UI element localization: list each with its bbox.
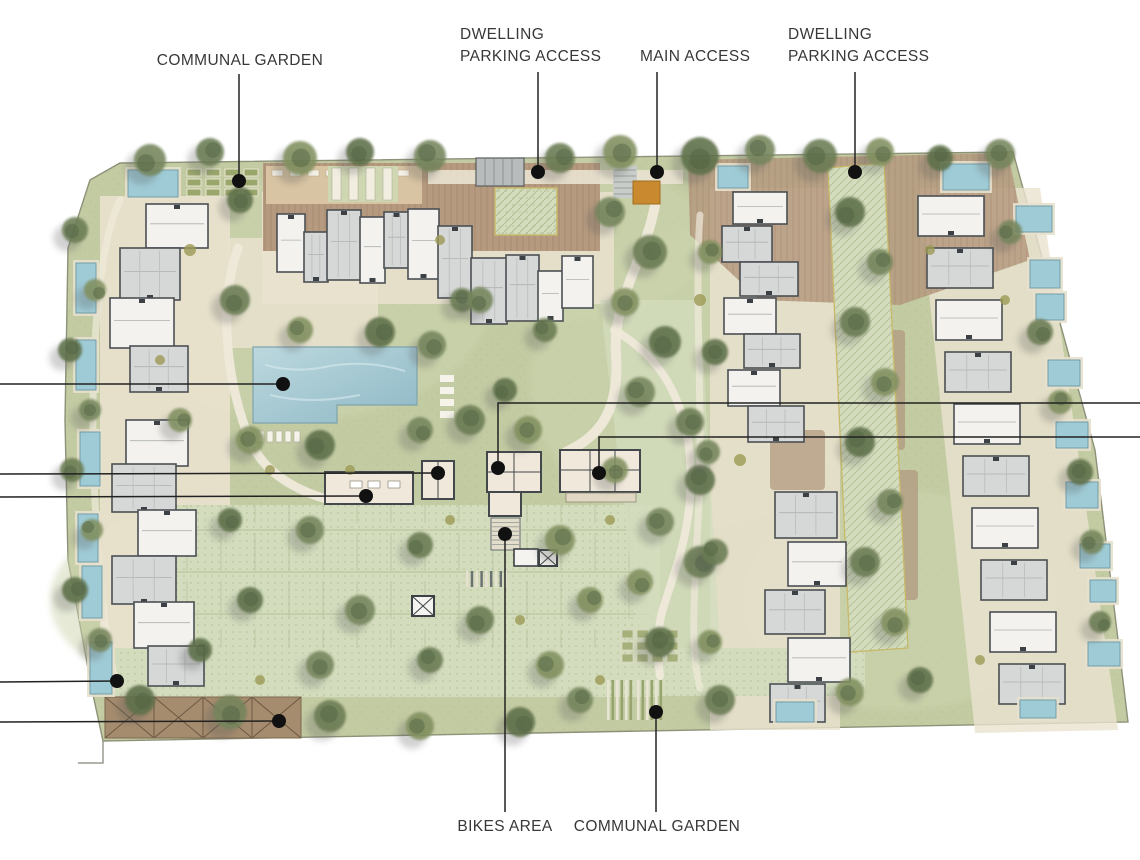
tree-canopy-core xyxy=(649,513,664,528)
garden-bed xyxy=(187,179,201,186)
tree-canopy-core xyxy=(838,207,855,224)
tree-canopy-core xyxy=(82,521,94,533)
roof-access-mark xyxy=(769,363,775,367)
bike-rack xyxy=(471,571,473,587)
tree-canopy-core xyxy=(999,225,1012,238)
tree-canopy-core xyxy=(609,465,623,479)
allotment-stripe xyxy=(630,680,633,720)
private-pool xyxy=(1090,580,1116,602)
allotment-stripe xyxy=(637,680,640,720)
tree-canopy-core xyxy=(1098,619,1110,631)
tree-canopy-core xyxy=(705,243,718,256)
dwelling-building xyxy=(134,602,194,648)
dwelling-building xyxy=(110,298,174,348)
boundary-step xyxy=(78,741,103,763)
tree-canopy-core xyxy=(469,615,484,630)
roof-access-mark xyxy=(486,319,492,323)
main-access-plaza xyxy=(633,181,660,204)
pool-lounger xyxy=(440,387,454,394)
label-communal-garden-top: COMMUNAL GARDEN xyxy=(157,50,323,72)
dwelling-building xyxy=(724,298,776,334)
private-pool xyxy=(1020,700,1056,718)
tree-canopy-core xyxy=(418,144,436,162)
dwelling-building xyxy=(972,508,1038,548)
dwelling-building xyxy=(765,590,825,634)
dwelling-building xyxy=(538,271,563,321)
roof-access-mark xyxy=(814,581,820,585)
tree-canopy-core xyxy=(635,578,649,592)
pool-lounger-row xyxy=(285,431,291,442)
roof-access-mark xyxy=(773,437,779,441)
tree-canopy-core xyxy=(63,465,76,478)
dwelling-building xyxy=(775,492,837,538)
tree-canopy-core xyxy=(495,385,508,398)
dwelling-building xyxy=(120,248,180,300)
shrub xyxy=(975,655,985,665)
roof-access-mark xyxy=(452,227,458,231)
dwelling-building xyxy=(562,256,593,308)
garden-bed xyxy=(206,189,220,196)
dwelling-building xyxy=(408,209,439,279)
dwelling-building xyxy=(722,226,772,262)
tree-canopy-core xyxy=(137,154,155,172)
tree-canopy-core xyxy=(575,690,589,704)
roof-access-mark xyxy=(1002,543,1008,547)
roof-access-mark xyxy=(948,231,954,235)
private-pool xyxy=(1048,360,1080,386)
tree-canopy-core xyxy=(463,410,480,427)
dwelling-building xyxy=(130,346,188,392)
dwelling-building xyxy=(936,300,1002,340)
tree-canopy-core xyxy=(712,691,729,708)
roof-access-mark xyxy=(751,371,757,375)
roof-access-mark xyxy=(803,493,809,497)
allotment-stripe xyxy=(655,680,658,720)
dwelling-building xyxy=(990,612,1056,652)
gym-equipment xyxy=(388,481,400,488)
tree-canopy-core xyxy=(205,142,220,157)
roof-access-mark xyxy=(795,685,801,689)
tree-canopy-core xyxy=(911,671,925,685)
tree-canopy-core xyxy=(135,693,152,710)
bike-rack xyxy=(466,571,468,587)
tree-canopy-core xyxy=(1072,464,1086,478)
garden-bed xyxy=(225,169,239,176)
shrub xyxy=(515,615,525,625)
roof-access-mark xyxy=(747,299,753,303)
dwelling-building xyxy=(728,370,780,406)
roof-access-mark xyxy=(421,274,427,278)
tree-canopy-core xyxy=(195,643,208,656)
label-dwelling-parking-left: DWELLING PARKING ACCESS xyxy=(460,24,601,68)
dwelling-building xyxy=(327,210,361,280)
pool-lounger xyxy=(440,375,454,382)
roof-access-mark xyxy=(173,681,179,685)
tree-canopy-core xyxy=(351,146,366,161)
dwelling-building xyxy=(112,464,176,512)
tree-canopy-core xyxy=(652,632,669,649)
shrub xyxy=(694,294,706,306)
tree-canopy-core xyxy=(654,336,672,354)
tree-canopy-core xyxy=(472,296,486,310)
bike-rack xyxy=(500,571,502,587)
tree-canopy-core xyxy=(225,515,238,528)
private-pool xyxy=(1030,260,1060,288)
tree-canopy-core xyxy=(643,242,662,261)
tree-canopy-core xyxy=(538,656,553,671)
dwelling-building xyxy=(963,456,1029,496)
tree-canopy-core xyxy=(84,404,96,416)
shrub xyxy=(255,675,265,685)
dwelling-building xyxy=(981,560,1047,600)
tree-canopy-core xyxy=(416,426,430,440)
gym-equipment xyxy=(350,481,362,488)
masterplan-canvas: COMMUNAL GARDEN DWELLING PARKING ACCESS … xyxy=(0,0,1140,860)
private-pool xyxy=(80,432,100,486)
roof-access-mark xyxy=(744,227,750,231)
tree-canopy-core xyxy=(606,201,623,218)
allotment-stripe xyxy=(616,680,619,720)
dwelling-building xyxy=(945,352,1011,392)
shrub xyxy=(435,235,445,245)
plaza-hatch xyxy=(495,188,557,235)
tree-canopy-core xyxy=(1054,392,1067,405)
tree-canopy-core xyxy=(94,634,107,647)
tree-canopy-core xyxy=(617,295,632,310)
private-pool xyxy=(1056,422,1088,448)
allotment-stripe xyxy=(621,680,624,720)
tree-canopy-core xyxy=(706,634,719,647)
private-pool xyxy=(776,702,814,722)
private-pool xyxy=(1016,206,1052,232)
tree-canopy-core xyxy=(290,321,304,335)
amenity-c-deck xyxy=(566,493,636,502)
roof-access-mark xyxy=(156,387,162,391)
tree-canopy-core xyxy=(690,149,711,170)
tree-canopy-core xyxy=(750,140,767,157)
tree-canopy-core xyxy=(685,414,700,429)
tree-canopy-core xyxy=(65,341,78,354)
pool-lounger xyxy=(440,399,454,406)
garden-plot xyxy=(622,654,633,662)
dwelling-building xyxy=(277,214,305,272)
pool-lounger-row xyxy=(276,431,282,442)
tree-canopy-core xyxy=(1082,536,1095,549)
shrub xyxy=(1000,295,1010,305)
dwelling-building xyxy=(927,248,993,288)
bike-rack xyxy=(480,571,482,587)
planter xyxy=(332,168,341,200)
roof-access-mark xyxy=(984,439,990,443)
planter xyxy=(366,168,375,200)
garden-bed xyxy=(225,179,239,186)
pool-lounger-row xyxy=(294,431,300,442)
allotment-stripe xyxy=(625,680,628,720)
dwelling-building xyxy=(138,510,196,556)
roof-access-mark xyxy=(313,277,319,281)
garden-bed xyxy=(187,189,201,196)
tree-canopy-core xyxy=(587,591,601,605)
tree-canopy-core xyxy=(859,555,876,572)
dwelling-building xyxy=(360,217,385,283)
pedestrian-band-texture xyxy=(103,648,865,696)
roof-access-mark xyxy=(520,256,526,260)
shrub xyxy=(925,245,935,255)
tree-canopy-core xyxy=(519,422,534,437)
roof-access-mark xyxy=(164,511,170,515)
gym-equipment xyxy=(368,481,380,488)
planter xyxy=(383,168,392,200)
tree-canopy-core xyxy=(991,145,1008,162)
label-communal-garden-bottom: COMMUNAL GARDEN xyxy=(574,816,740,838)
label-dwelling-parking-right: DWELLING PARKING ACCESS xyxy=(788,24,929,68)
pool-lounger-row xyxy=(267,431,273,442)
tree-canopy-core xyxy=(876,376,891,391)
dwelling-building xyxy=(112,556,176,604)
roof-access-mark xyxy=(370,278,376,282)
tree-canopy-core xyxy=(93,287,105,299)
shrub xyxy=(595,675,605,685)
tree-canopy-core xyxy=(875,146,890,161)
roof-access-mark xyxy=(575,257,581,261)
allotment-stripe xyxy=(660,680,663,720)
tree-canopy-core xyxy=(516,716,533,733)
dwelling-building xyxy=(744,334,800,368)
tree-canopy-core xyxy=(840,685,855,700)
tree-canopy-core xyxy=(535,321,548,334)
roof-access-mark xyxy=(288,215,294,219)
dwelling-building xyxy=(740,262,798,296)
tree-canopy-core xyxy=(312,659,327,674)
tree-canopy-core xyxy=(320,705,338,723)
tree-canopy-core xyxy=(308,438,325,455)
tree-canopy-core xyxy=(409,540,423,554)
tree-canopy-core xyxy=(613,144,632,163)
tree-canopy-core xyxy=(887,494,901,508)
tree-canopy-core xyxy=(65,224,79,238)
tree-canopy-core xyxy=(849,431,866,448)
tree-canopy-core xyxy=(292,149,311,168)
dwelling-building xyxy=(304,232,328,282)
bike-rack xyxy=(504,571,506,587)
tree-canopy-core xyxy=(376,324,393,341)
roof-access-mark xyxy=(161,603,167,607)
roof-access-mark xyxy=(766,291,772,295)
site-plan-drawing xyxy=(0,0,1140,860)
tree-canopy-core xyxy=(556,149,573,166)
dwelling-building xyxy=(788,542,846,586)
tree-canopy-core xyxy=(708,345,722,359)
label-main-access: MAIN ACCESS xyxy=(640,46,750,68)
tree-canopy-core xyxy=(71,582,85,596)
dwelling-building xyxy=(506,255,539,321)
dwelling-building xyxy=(918,196,984,236)
shrub xyxy=(184,244,196,256)
dwelling-building xyxy=(954,404,1020,444)
dwelling-building xyxy=(384,212,409,268)
bike-rack xyxy=(490,571,492,587)
tree-canopy-core xyxy=(807,147,826,166)
shrub xyxy=(734,454,746,466)
shrub xyxy=(345,465,355,475)
shrub xyxy=(605,515,615,525)
tree-canopy-core xyxy=(934,148,948,162)
tree-canopy-core xyxy=(240,431,255,446)
roof-access-mark xyxy=(1029,665,1035,669)
dwelling-building xyxy=(788,638,850,682)
allotment-stripe xyxy=(646,680,649,720)
roof-access-mark xyxy=(1020,647,1026,651)
label-bikes-area: BIKES AREA xyxy=(457,816,552,838)
roof-access-mark xyxy=(993,457,999,461)
private-pool xyxy=(1036,294,1064,320)
amenity-b-annex xyxy=(489,492,521,516)
dwelling-building xyxy=(748,406,804,442)
tree-canopy-core xyxy=(876,253,890,267)
tree-canopy-core xyxy=(244,592,258,606)
garden-bed xyxy=(244,179,258,186)
roof-access-mark xyxy=(757,219,763,223)
tree-canopy-core xyxy=(421,650,435,664)
roof-access-mark xyxy=(966,335,972,339)
tree-canopy-core xyxy=(426,339,441,354)
tree-canopy-core xyxy=(226,295,243,312)
shrub xyxy=(265,465,275,475)
allotment-stripe xyxy=(642,680,645,720)
shrub xyxy=(445,515,455,525)
dwelling-building xyxy=(146,204,208,248)
tree-canopy-core xyxy=(300,522,315,537)
roof-access-mark xyxy=(792,591,798,595)
garden-bed xyxy=(206,179,220,186)
tree-canopy-core xyxy=(699,447,712,460)
roof-access-mark xyxy=(341,211,347,215)
allotment-stripe xyxy=(607,680,610,720)
shrub xyxy=(155,355,165,365)
tree-canopy-core xyxy=(704,542,718,556)
allotment-stripe xyxy=(612,680,615,720)
tree-canopy-core xyxy=(1036,327,1050,341)
bike-rack xyxy=(485,571,487,587)
garden-plot xyxy=(622,642,633,650)
roof-access-mark xyxy=(394,213,400,217)
roof-access-mark xyxy=(975,353,981,357)
garden-bed xyxy=(244,169,258,176)
tree-canopy-core xyxy=(177,413,190,426)
parking-ramp xyxy=(476,158,524,186)
roof-access-mark xyxy=(154,421,160,425)
garden-plot xyxy=(667,654,678,662)
roof-access-mark xyxy=(139,299,145,303)
bike-rack xyxy=(476,571,478,587)
roof-access-mark xyxy=(1011,561,1017,565)
bike-rack xyxy=(495,571,497,587)
roof-access-mark xyxy=(174,205,180,209)
allotment-stripe xyxy=(651,680,654,720)
tree-canopy-core xyxy=(848,314,865,331)
private-pool xyxy=(1088,642,1120,666)
tree-canopy-core xyxy=(222,706,241,725)
tree-canopy-core xyxy=(628,382,645,399)
tree-canopy-core xyxy=(409,718,424,733)
parking-lobby xyxy=(514,549,538,566)
tree-canopy-core xyxy=(234,194,248,208)
roof-access-mark xyxy=(957,249,963,253)
tree-canopy-core xyxy=(555,529,572,546)
roof-access-mark xyxy=(816,677,822,681)
garden-plot xyxy=(622,630,633,638)
tree-canopy-core xyxy=(351,603,368,620)
tree-canopy-core xyxy=(887,617,902,632)
